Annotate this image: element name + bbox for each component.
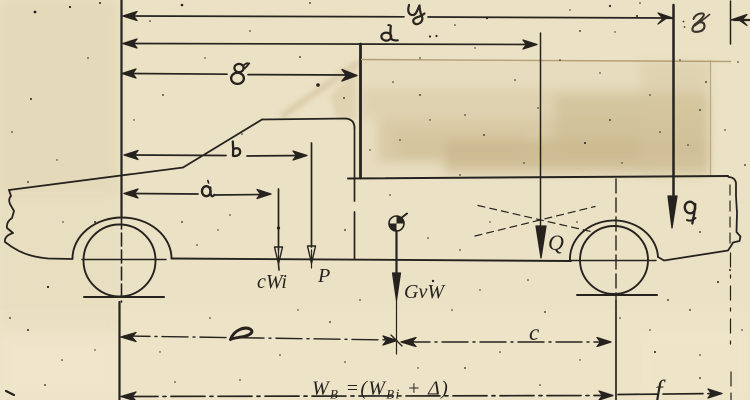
svg-text:P: P xyxy=(317,265,330,287)
svg-text:cWi: cWi xyxy=(257,271,287,293)
svg-text:GvW: GvW xyxy=(404,281,446,303)
svg-text:c: c xyxy=(529,320,539,345)
svg-text:Q: Q xyxy=(548,230,564,255)
